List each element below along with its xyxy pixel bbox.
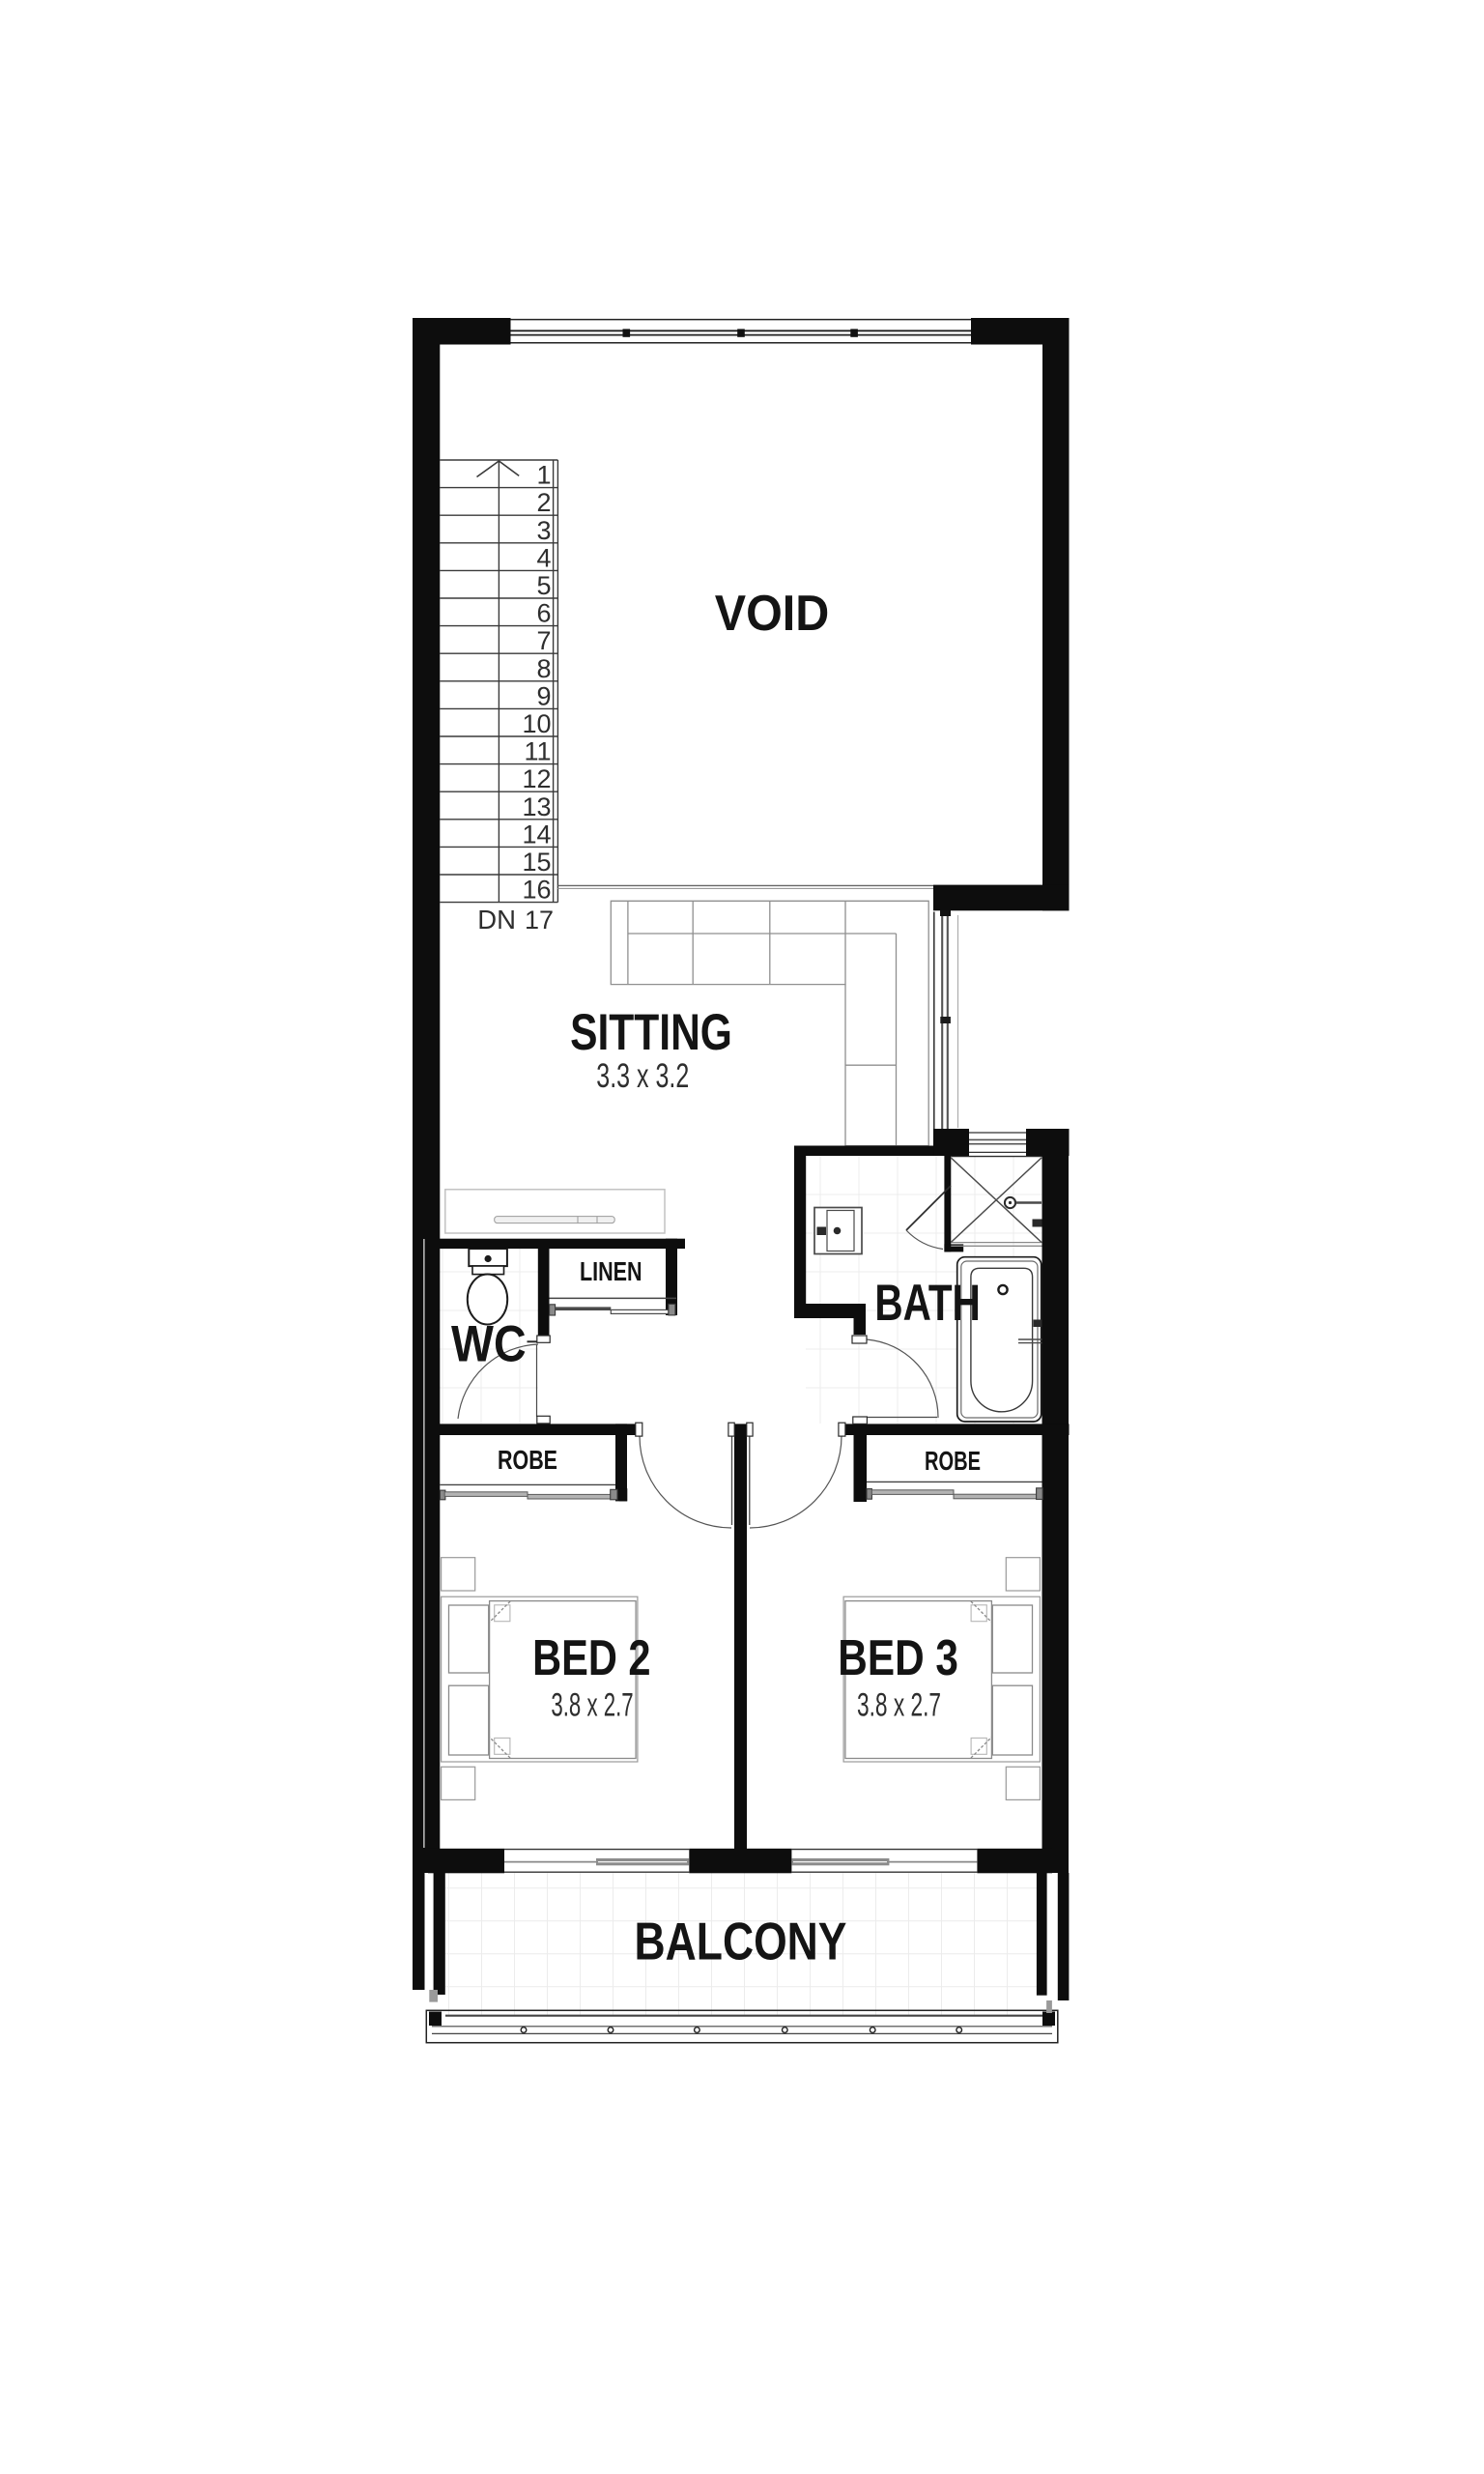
svg-text:ROBE: ROBE bbox=[925, 1446, 981, 1476]
svg-text:ROBE: ROBE bbox=[498, 1445, 557, 1475]
svg-text:SITTING: SITTING bbox=[570, 1004, 732, 1061]
svg-text:17: 17 bbox=[525, 906, 554, 935]
svg-text:2: 2 bbox=[536, 488, 551, 517]
svg-text:16: 16 bbox=[522, 876, 551, 905]
svg-text:5: 5 bbox=[536, 571, 551, 600]
svg-text:8: 8 bbox=[536, 654, 551, 683]
svg-text:10: 10 bbox=[522, 709, 551, 738]
svg-text:BALCONY: BALCONY bbox=[635, 1912, 847, 1971]
svg-text:DN: DN bbox=[477, 905, 516, 935]
svg-text:6: 6 bbox=[536, 599, 551, 628]
svg-text:7: 7 bbox=[536, 626, 551, 655]
svg-text:1: 1 bbox=[536, 461, 551, 490]
svg-text:3.8 x 2.7: 3.8 x 2.7 bbox=[857, 1687, 941, 1724]
svg-text:3.3 x 3.2: 3.3 x 3.2 bbox=[596, 1057, 689, 1095]
svg-text:BATH: BATH bbox=[874, 1275, 980, 1332]
svg-text:14: 14 bbox=[522, 820, 551, 849]
svg-text:LINEN: LINEN bbox=[580, 1256, 642, 1286]
svg-text:BED 3: BED 3 bbox=[838, 1630, 958, 1686]
svg-text:12: 12 bbox=[522, 764, 551, 793]
svg-text:3: 3 bbox=[536, 516, 551, 545]
svg-text:15: 15 bbox=[522, 848, 551, 877]
svg-text:4: 4 bbox=[536, 543, 551, 572]
svg-text:3.8 x 2.7: 3.8 x 2.7 bbox=[551, 1687, 633, 1724]
svg-text:13: 13 bbox=[522, 792, 551, 821]
svg-text:BED 2: BED 2 bbox=[532, 1630, 650, 1686]
svg-text:11: 11 bbox=[524, 737, 551, 766]
svg-text:9: 9 bbox=[536, 681, 551, 710]
svg-text:VOID: VOID bbox=[715, 586, 830, 642]
svg-text:WC: WC bbox=[451, 1316, 527, 1373]
